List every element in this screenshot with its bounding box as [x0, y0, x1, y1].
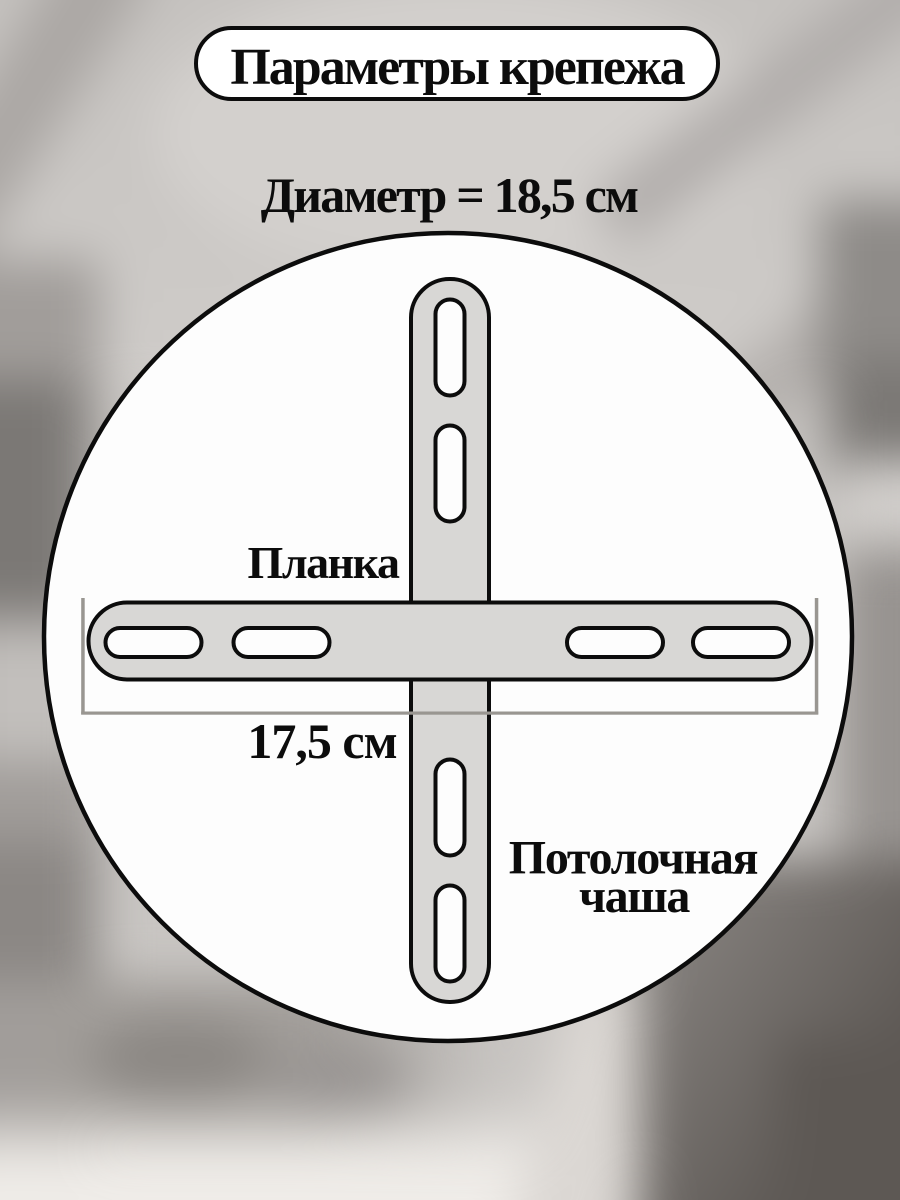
svg-text:Планка: Планка	[248, 537, 400, 588]
svg-text:Параметры крепежа: Параметры крепежа	[230, 39, 685, 96]
svg-text:17,5 см: 17,5 см	[247, 713, 396, 769]
svg-text:чаша: чаша	[579, 870, 690, 923]
svg-text:Диаметр = 18,5 см: Диаметр = 18,5 см	[261, 167, 638, 223]
